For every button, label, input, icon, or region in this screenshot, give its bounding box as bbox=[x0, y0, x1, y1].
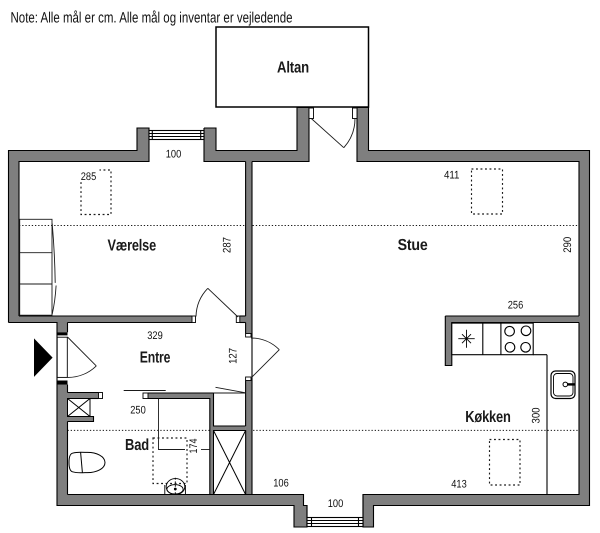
svg-text:290: 290 bbox=[562, 237, 574, 253]
svg-text:Entre: Entre bbox=[140, 349, 171, 366]
svg-text:106: 106 bbox=[273, 478, 289, 490]
svg-text:Køkken: Køkken bbox=[465, 409, 511, 426]
svg-text:Note: Alle mål er cm. Alle mål: Note: Alle mål er cm. Alle mål og invent… bbox=[11, 10, 293, 27]
svg-text:127: 127 bbox=[228, 348, 240, 364]
svg-text:300: 300 bbox=[531, 408, 543, 424]
svg-text:411: 411 bbox=[444, 170, 460, 182]
svg-text:Bad: Bad bbox=[125, 437, 149, 454]
svg-text:329: 329 bbox=[147, 330, 163, 342]
svg-text:256: 256 bbox=[508, 300, 524, 312]
svg-text:Værelse: Værelse bbox=[108, 238, 157, 255]
svg-text:100: 100 bbox=[328, 498, 344, 510]
svg-text:287: 287 bbox=[222, 237, 234, 253]
svg-text:250: 250 bbox=[130, 405, 146, 417]
svg-text:Altan: Altan bbox=[277, 60, 309, 77]
svg-text:413: 413 bbox=[451, 479, 467, 491]
svg-text:174: 174 bbox=[188, 439, 200, 454]
svg-text:285: 285 bbox=[81, 171, 97, 183]
svg-text:100: 100 bbox=[166, 149, 182, 161]
svg-text:Stue: Stue bbox=[398, 237, 428, 254]
